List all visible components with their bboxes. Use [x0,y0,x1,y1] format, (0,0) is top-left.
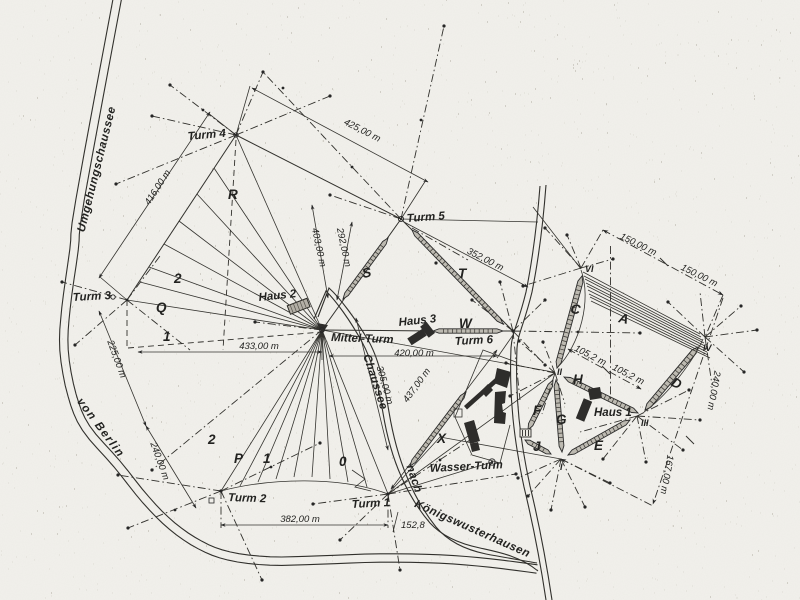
svg-text:J: J [533,439,541,454]
svg-text:H: H [573,372,583,387]
svg-text:Turm 1: Turm 1 [352,497,391,511]
svg-text:1: 1 [263,451,271,466]
svg-text:III: III [641,418,649,428]
svg-text:Turm 3: Turm 3 [73,290,112,304]
svg-text:2: 2 [207,432,216,447]
svg-text:Q: Q [156,300,167,315]
svg-text:1: 1 [163,329,171,344]
svg-text:Haus 1: Haus 1 [594,407,632,419]
svg-text:420,00 m: 420,00 m [394,348,434,359]
svg-text:2: 2 [173,271,182,286]
svg-text:II: II [557,367,563,377]
svg-text:382,00 m: 382,00 m [280,514,320,525]
svg-text:433,00 m: 433,00 m [239,341,279,352]
svg-text:0: 0 [339,454,347,469]
svg-text:F: F [533,403,542,418]
svg-text:152,8: 152,8 [401,520,425,531]
svg-text:X: X [436,431,447,446]
svg-text:W: W [459,316,473,331]
svg-text:R: R [228,187,238,202]
svg-text:G: G [556,412,567,427]
svg-text:P: P [234,451,244,466]
svg-text:Turm 2: Turm 2 [228,492,267,505]
svg-text:Mittel-Turm: Mittel-Turm [331,332,394,346]
svg-text:Turm 6: Turm 6 [455,334,494,348]
svg-text:VI: VI [585,264,594,274]
svg-text:IV: IV [703,343,713,353]
svg-text:E: E [594,438,604,453]
